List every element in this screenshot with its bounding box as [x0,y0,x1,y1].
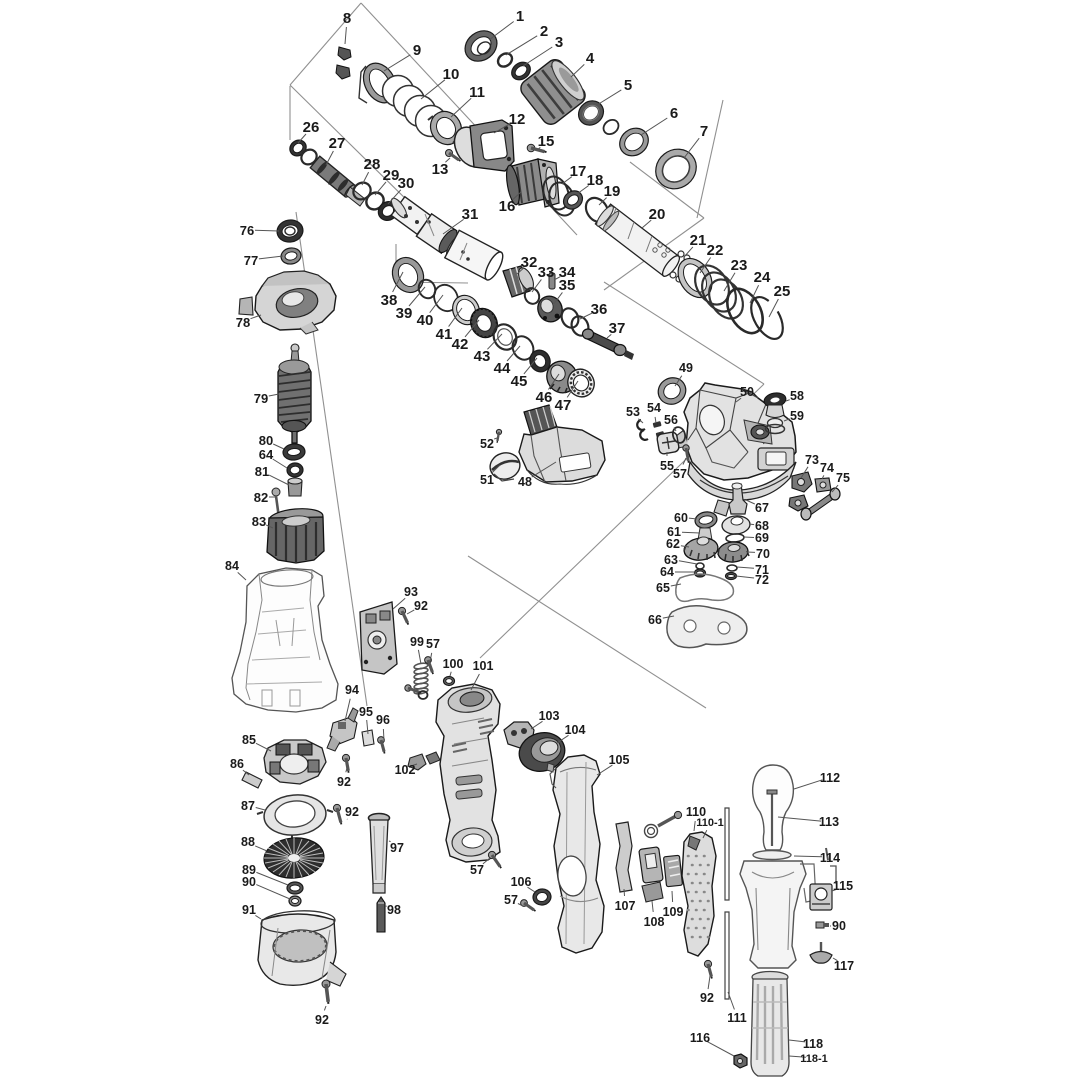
svg-text:57: 57 [426,637,440,651]
svg-text:10: 10 [443,66,460,83]
svg-text:109: 109 [663,905,684,919]
svg-text:48: 48 [518,475,532,489]
svg-text:42: 42 [452,336,469,353]
svg-text:5: 5 [624,77,632,94]
svg-text:1: 1 [516,8,524,25]
svg-text:55: 55 [660,459,674,473]
svg-text:112: 112 [820,771,840,785]
svg-text:106: 106 [511,875,532,889]
svg-text:43: 43 [474,348,491,365]
svg-text:74: 74 [820,461,834,475]
svg-text:80: 80 [259,433,273,448]
svg-text:22: 22 [707,242,724,259]
svg-text:113: 113 [819,815,839,829]
svg-text:117: 117 [834,959,854,973]
svg-text:104: 104 [565,723,586,737]
svg-text:59: 59 [790,409,804,423]
svg-text:118-1: 118-1 [800,1053,828,1065]
svg-text:45: 45 [511,373,528,390]
svg-text:81: 81 [255,464,269,479]
svg-text:8: 8 [343,10,351,27]
svg-text:27: 27 [329,135,346,152]
svg-text:57: 57 [470,863,484,877]
svg-text:98: 98 [387,903,401,917]
svg-text:25: 25 [774,283,791,300]
svg-text:9: 9 [413,42,421,59]
svg-text:64: 64 [259,447,274,462]
svg-text:57: 57 [504,893,518,907]
svg-text:84: 84 [225,559,239,573]
svg-text:65: 65 [656,581,670,595]
svg-text:99: 99 [410,635,424,649]
svg-text:100: 100 [443,657,464,671]
svg-text:51: 51 [480,473,494,487]
svg-text:79: 79 [254,391,268,406]
svg-text:94: 94 [345,683,359,697]
svg-text:93: 93 [404,585,418,599]
svg-text:92: 92 [414,599,428,613]
svg-text:18: 18 [587,172,604,189]
svg-text:21: 21 [690,232,707,249]
svg-text:26: 26 [303,119,320,136]
svg-text:115: 115 [833,879,853,893]
svg-text:110-1: 110-1 [696,817,724,829]
svg-text:92: 92 [700,991,714,1005]
svg-text:16: 16 [499,198,516,215]
svg-text:58: 58 [790,389,804,403]
svg-text:91: 91 [242,903,256,917]
svg-text:19: 19 [604,183,621,200]
svg-text:2: 2 [540,23,548,40]
svg-text:11: 11 [469,84,485,101]
svg-text:102: 102 [395,763,416,777]
svg-text:114: 114 [820,851,840,865]
svg-text:90: 90 [832,919,846,933]
svg-text:39: 39 [396,305,413,322]
svg-text:30: 30 [398,175,415,192]
svg-text:57: 57 [673,467,687,481]
svg-text:4: 4 [586,50,595,67]
svg-text:92: 92 [345,805,359,819]
svg-text:87: 87 [241,799,255,813]
svg-text:70: 70 [756,547,770,561]
svg-text:75: 75 [836,471,850,485]
svg-text:12: 12 [509,111,526,128]
svg-text:95: 95 [359,705,373,719]
svg-text:31: 31 [462,206,479,223]
svg-text:62: 62 [666,537,680,551]
svg-text:105: 105 [609,753,630,767]
svg-text:49: 49 [679,361,693,375]
svg-text:72: 72 [755,573,769,587]
svg-text:92: 92 [315,1013,329,1027]
svg-text:3: 3 [555,34,563,51]
svg-text:54: 54 [647,401,661,415]
svg-text:46: 46 [536,389,553,406]
svg-text:33: 33 [538,264,555,281]
svg-text:66: 66 [648,613,662,627]
svg-text:15: 15 [538,133,555,150]
svg-text:103: 103 [539,709,560,723]
svg-text:35: 35 [559,277,576,294]
svg-text:6: 6 [670,105,678,122]
svg-text:86: 86 [230,757,244,771]
svg-text:13: 13 [432,161,449,178]
svg-text:88: 88 [241,835,255,849]
svg-text:97: 97 [390,841,404,855]
svg-text:101: 101 [473,659,494,673]
svg-text:64: 64 [660,565,674,579]
svg-text:47: 47 [555,397,572,414]
svg-text:83: 83 [252,514,266,529]
svg-text:60: 60 [674,511,688,525]
svg-text:77: 77 [244,253,258,268]
svg-text:67: 67 [755,501,769,515]
svg-text:17: 17 [570,163,587,180]
svg-text:92: 92 [337,775,351,789]
svg-text:41: 41 [436,326,453,343]
svg-text:69: 69 [755,531,769,545]
svg-text:82: 82 [254,490,268,505]
svg-text:24: 24 [754,269,771,286]
svg-text:90: 90 [242,875,256,889]
svg-text:116: 116 [690,1031,710,1045]
svg-text:32: 32 [521,254,538,271]
svg-text:76: 76 [240,223,254,238]
svg-text:73: 73 [805,453,819,467]
svg-text:7: 7 [700,123,708,140]
svg-text:107: 107 [615,899,636,913]
svg-text:20: 20 [649,206,666,223]
svg-text:50: 50 [740,385,754,399]
svg-text:53: 53 [626,405,640,419]
svg-text:40: 40 [417,312,434,329]
svg-text:36: 36 [591,301,608,318]
svg-text:118: 118 [803,1037,823,1051]
svg-text:56: 56 [664,413,678,427]
svg-text:96: 96 [376,713,390,727]
svg-text:78: 78 [236,315,250,330]
svg-text:111: 111 [727,1011,747,1025]
svg-text:23: 23 [731,257,748,274]
svg-text:28: 28 [364,156,381,173]
svg-text:108: 108 [644,915,665,929]
svg-text:52: 52 [480,437,494,451]
svg-text:85: 85 [242,733,256,747]
svg-text:44: 44 [494,360,511,377]
svg-text:37: 37 [609,320,626,337]
